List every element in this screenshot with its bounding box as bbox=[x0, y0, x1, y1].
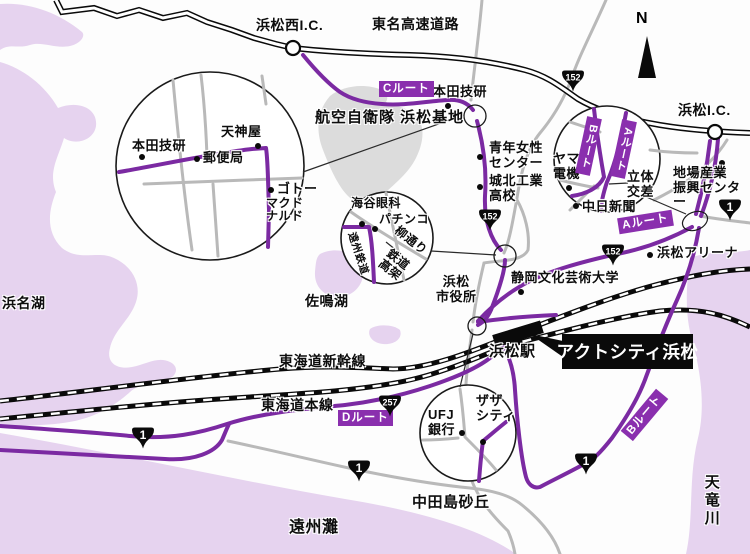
shield-152-mid: 152 bbox=[476, 208, 504, 232]
dot-inset-tenjinya bbox=[255, 143, 261, 149]
geidai-label: 静岡文化芸術大学 bbox=[511, 271, 619, 286]
dot-inset-pachinko bbox=[372, 226, 378, 232]
ic-west-circle bbox=[286, 41, 300, 55]
shield-1-south-text: 1 bbox=[356, 461, 363, 475]
shield-1-southeast: 1 bbox=[572, 452, 600, 476]
leader-inset-yanagi bbox=[431, 251, 496, 255]
inset-zaza-label: ザザ シティ bbox=[476, 394, 516, 423]
chunichi-label: 中日新聞 bbox=[582, 200, 636, 215]
dot-inset-honda bbox=[139, 154, 145, 160]
dot-seinen bbox=[477, 154, 483, 160]
ring-c-corner bbox=[464, 105, 486, 127]
inset-post-office-label: 郵便局 bbox=[203, 151, 244, 166]
station-label: 浜松駅 bbox=[489, 344, 536, 361]
ic-east-label: 浜松I.C. bbox=[678, 103, 731, 119]
dot-chunichi bbox=[573, 203, 579, 209]
seinen-josei-label: 青年女性 センター bbox=[489, 141, 543, 170]
dot-inset-kaiya bbox=[359, 221, 365, 227]
shield-152-north: 152 bbox=[559, 69, 587, 93]
ic-east-circle bbox=[708, 125, 722, 139]
dot-inset-ufj bbox=[459, 430, 465, 436]
dot-yamada bbox=[566, 185, 572, 191]
compass-north-label: N bbox=[636, 10, 648, 28]
dot-johoku bbox=[477, 184, 483, 190]
airbase-label: 航空自衛隊 浜松基地 bbox=[315, 110, 464, 127]
dot-inset-postoffice bbox=[194, 156, 200, 162]
city-hall-label: 浜松 市役所 bbox=[436, 275, 477, 304]
shield-1-southwest: 1 bbox=[129, 426, 157, 450]
tomei-expressway-label: 東名高速道路 bbox=[372, 17, 459, 33]
main-line-label: 東海道本線 bbox=[261, 398, 334, 414]
shield-257-text: 257 bbox=[382, 398, 397, 408]
enshu-nada-label: 遠州灘 bbox=[289, 519, 339, 537]
tenryu-river-label: 天竜川 bbox=[702, 474, 719, 528]
small-urban-patch bbox=[369, 325, 400, 344]
honda-main-label: 本田技研 bbox=[433, 85, 487, 100]
compass-arrow bbox=[638, 36, 656, 78]
shield-257: 257 bbox=[376, 394, 404, 418]
lake-hamana-label: 浜名湖 bbox=[2, 296, 46, 312]
shield-1-south: 1 bbox=[345, 459, 373, 483]
shield-1-southeast-text: 1 bbox=[583, 454, 590, 468]
inset-mcdonalds-label: マクド ナルド bbox=[266, 197, 304, 224]
inset-honda-label: 本田技研 bbox=[132, 139, 186, 154]
dot-inset-goto bbox=[268, 187, 274, 193]
rittai-kosa-label: 立体 交差 bbox=[627, 170, 654, 199]
inset-ufj-label: UFJ 銀行 bbox=[428, 408, 455, 437]
inset-goto-label: ゴトー bbox=[277, 182, 318, 197]
arena-label: 浜松アリーナ bbox=[657, 246, 738, 261]
dot-arena bbox=[647, 252, 653, 258]
ic-west-label: 浜松西I.C. bbox=[256, 18, 323, 34]
dot-inset-zaza bbox=[480, 439, 486, 445]
shinkansen-label: 東海道新幹線 bbox=[279, 354, 366, 370]
inset-tenjinya-label: 天神屋 bbox=[221, 125, 262, 140]
dot-geidai bbox=[518, 289, 524, 295]
shield-1-southwest-text: 1 bbox=[140, 428, 147, 442]
shield-152-east-text: 152 bbox=[605, 247, 620, 257]
inset-pachinko-label: パチンコ bbox=[379, 213, 429, 226]
nakatajima-label: 中田島砂丘 bbox=[412, 495, 490, 512]
shield-152-north-text: 152 bbox=[565, 73, 580, 83]
map-canvas bbox=[0, 0, 750, 554]
inset-kaiya-label: 海谷眼科 bbox=[351, 197, 401, 210]
shield-1-northeast-text: 1 bbox=[727, 200, 734, 214]
shield-1-northeast: 1 bbox=[716, 198, 744, 222]
act-city-destination: アクトシティ浜松 bbox=[562, 334, 693, 369]
shield-152-mid-text: 152 bbox=[482, 212, 497, 222]
shield-152-east: 152 bbox=[599, 243, 627, 267]
lake-sanaru-label: 佐鳴湖 bbox=[305, 294, 349, 310]
johoku-kogyo-label: 城北工業 高校 bbox=[489, 174, 543, 203]
route-c-badge: Cルート bbox=[379, 81, 434, 97]
hamamatsu-access-map: 浜松西I.C. 東名高速道路 N 浜松I.C. 航空自衛隊 浜松基地 本田技研 … bbox=[0, 0, 750, 554]
